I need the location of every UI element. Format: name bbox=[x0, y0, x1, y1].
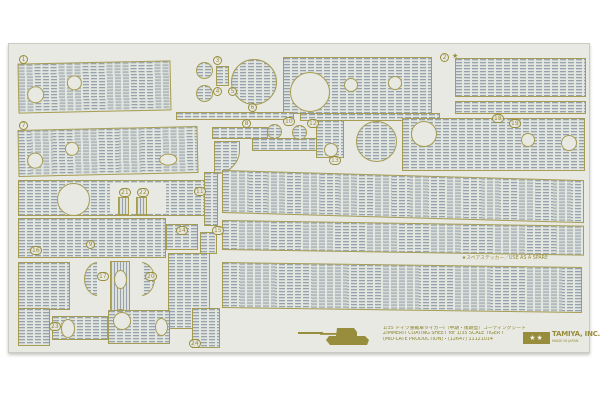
part-number-label: 20 bbox=[145, 272, 157, 281]
part-number-label: 2 bbox=[440, 53, 449, 62]
sheet-piece bbox=[84, 262, 97, 296]
sheet-piece bbox=[108, 310, 170, 344]
cutout-hole bbox=[344, 78, 358, 92]
part-number-label: 15 bbox=[212, 226, 224, 235]
brand-name: TAMIYA, INC. bbox=[552, 330, 600, 338]
part-number-label: 5 bbox=[228, 87, 237, 96]
sheet-piece bbox=[283, 57, 432, 114]
cutout-hole bbox=[388, 76, 402, 90]
sheet-piece bbox=[204, 172, 218, 226]
tamiya-twin-star-logo: ★★ bbox=[523, 332, 550, 344]
part-number-label: 22 bbox=[137, 188, 149, 197]
part-number-label: 1 bbox=[19, 55, 28, 64]
sheet-piece bbox=[18, 308, 50, 346]
spare-sticker-note: ★スペアステッカー／USE AS A SPARE bbox=[418, 254, 548, 261]
part-number-label: 7 bbox=[19, 121, 28, 130]
part-number-label: 14 bbox=[176, 226, 188, 235]
part-number-label: 19 bbox=[509, 119, 521, 128]
cutout-hole bbox=[324, 143, 338, 157]
cutout-hole bbox=[113, 312, 131, 330]
sheet-piece bbox=[196, 85, 213, 102]
cutout-hole bbox=[521, 133, 535, 147]
product-photo: 1 2 ★ 3 4 5 6 7 8 10 12 13 18 19 21 22 9… bbox=[0, 0, 600, 400]
sheet-piece bbox=[196, 62, 213, 79]
part-number-label: 6 bbox=[248, 103, 257, 112]
cutout-hole bbox=[67, 75, 82, 90]
part-number-label: 13 bbox=[329, 156, 341, 165]
sheet-piece bbox=[222, 262, 582, 313]
part-number-label: 23 bbox=[49, 322, 61, 331]
sheet-piece bbox=[267, 124, 282, 139]
part-number-label: 9 bbox=[86, 240, 95, 249]
sheet-piece bbox=[356, 121, 397, 162]
cutout-hole bbox=[155, 318, 168, 336]
part-number-label: 17 bbox=[97, 272, 109, 281]
sheet-piece bbox=[18, 262, 70, 310]
sheet-piece bbox=[455, 58, 586, 97]
product-code-line: (MID-LATE PRODUCTION)・(12647) 11121014 bbox=[383, 337, 525, 342]
part-number-label: 12 bbox=[307, 119, 319, 128]
part-number-label: 3 bbox=[213, 56, 222, 65]
sheet-piece bbox=[455, 101, 586, 114]
sheet-piece bbox=[231, 59, 277, 105]
crescent-piece bbox=[84, 262, 97, 296]
sheet-piece bbox=[316, 120, 344, 158]
sheet-piece bbox=[292, 125, 307, 140]
sheet-piece bbox=[176, 112, 294, 120]
part-number-label: 10 bbox=[283, 117, 295, 126]
cutout-hole bbox=[290, 72, 330, 112]
product-title-block: 1/35 ドイツ重戦車タイガーI（中期・後期型）コーティングシートセット ZIM… bbox=[383, 326, 525, 342]
sheet-piece bbox=[222, 220, 584, 256]
sheet-piece bbox=[136, 197, 147, 215]
sheet-piece bbox=[118, 197, 129, 215]
cutout-hole bbox=[27, 86, 44, 103]
tiger-tank-silhouette bbox=[320, 324, 372, 350]
sheet-piece bbox=[200, 232, 217, 254]
part-number-label: 21 bbox=[119, 188, 131, 197]
cutout-hole bbox=[114, 270, 127, 289]
part-number-label: 11 bbox=[194, 187, 206, 196]
cutout-hole bbox=[61, 319, 75, 338]
part-number-label: 4 bbox=[213, 87, 222, 96]
cutout-hole bbox=[159, 153, 177, 165]
part-number-label: 18 bbox=[492, 114, 504, 123]
sheet-piece bbox=[216, 66, 229, 86]
sheet-piece bbox=[17, 60, 171, 113]
cutout-hole bbox=[27, 152, 43, 168]
spare-star-icon: ★ bbox=[452, 53, 458, 60]
cutout-hole bbox=[561, 135, 577, 151]
cutout-hole bbox=[411, 121, 437, 147]
brand-sub-text: MADE IN JAPAN bbox=[552, 339, 578, 343]
cutout-hole bbox=[65, 142, 79, 156]
part-number-label: 24 bbox=[189, 339, 201, 348]
sheet-piece bbox=[402, 118, 585, 171]
cutout-hole bbox=[57, 183, 90, 216]
part-number-label: 8 bbox=[242, 119, 251, 128]
sheet-piece bbox=[17, 126, 198, 177]
part-number-label: 16 bbox=[30, 246, 42, 255]
